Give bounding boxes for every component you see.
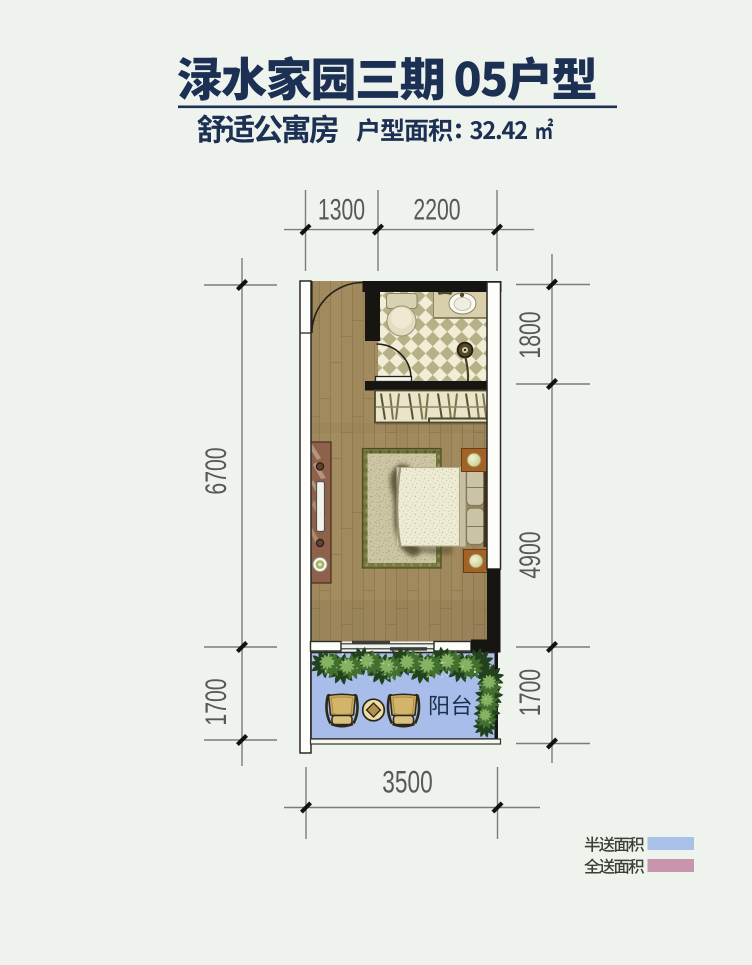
svg-text:3500: 3500 — [382, 764, 432, 800]
svg-text:1700: 1700 — [201, 678, 233, 725]
svg-text:1800: 1800 — [515, 311, 547, 358]
svg-text:4900: 4900 — [515, 531, 547, 578]
svg-text:1300: 1300 — [318, 194, 365, 226]
svg-text:1700: 1700 — [515, 669, 547, 716]
svg-text:6700: 6700 — [201, 447, 233, 494]
svg-text:2200: 2200 — [413, 194, 460, 226]
